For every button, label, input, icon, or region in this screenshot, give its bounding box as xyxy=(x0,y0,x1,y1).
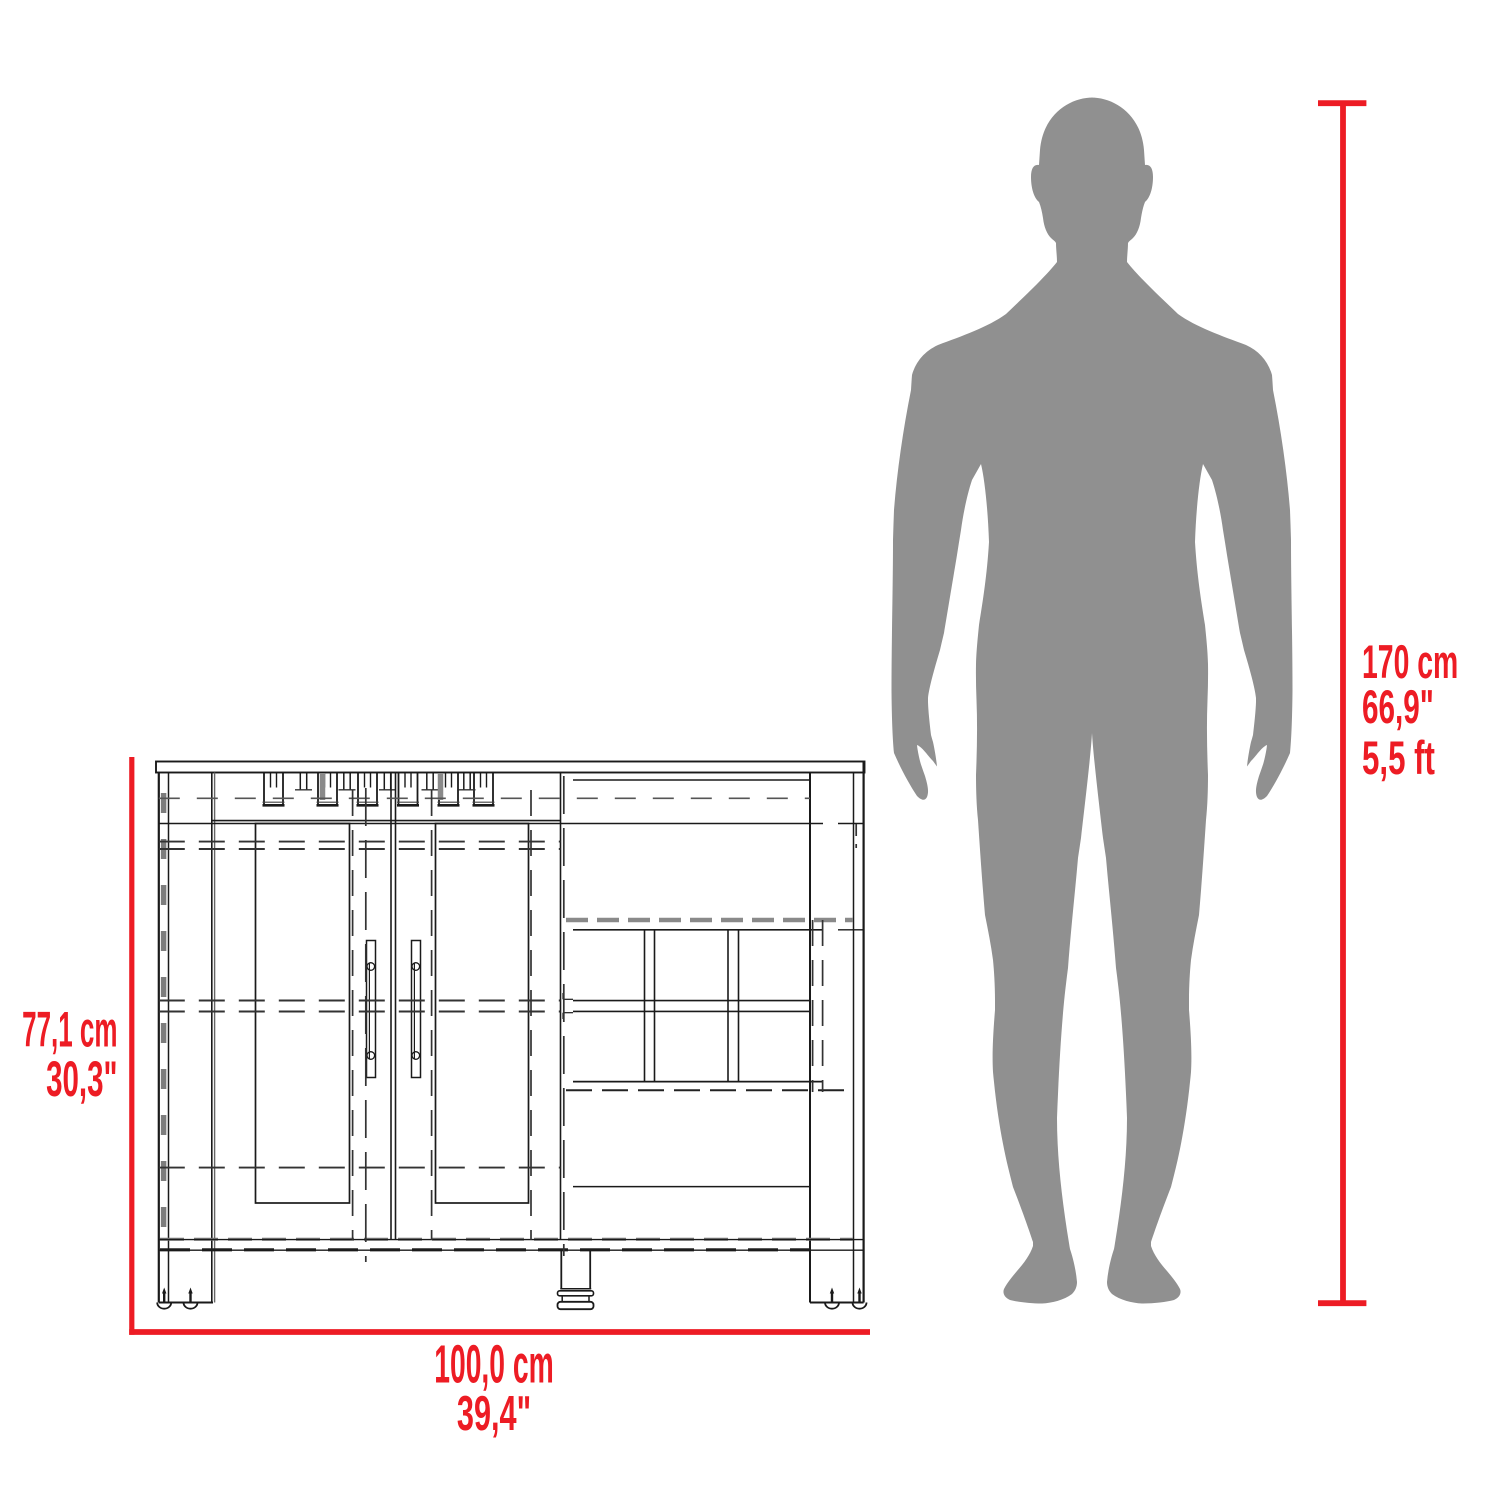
svg-text:39,4": 39,4" xyxy=(457,1386,531,1441)
svg-text:77,1 cm: 77,1 cm xyxy=(22,1002,117,1057)
svg-text:30,3": 30,3" xyxy=(46,1051,117,1107)
svg-text:66,9": 66,9" xyxy=(1362,681,1434,734)
svg-text:5,5 ft: 5,5 ft xyxy=(1362,733,1435,785)
